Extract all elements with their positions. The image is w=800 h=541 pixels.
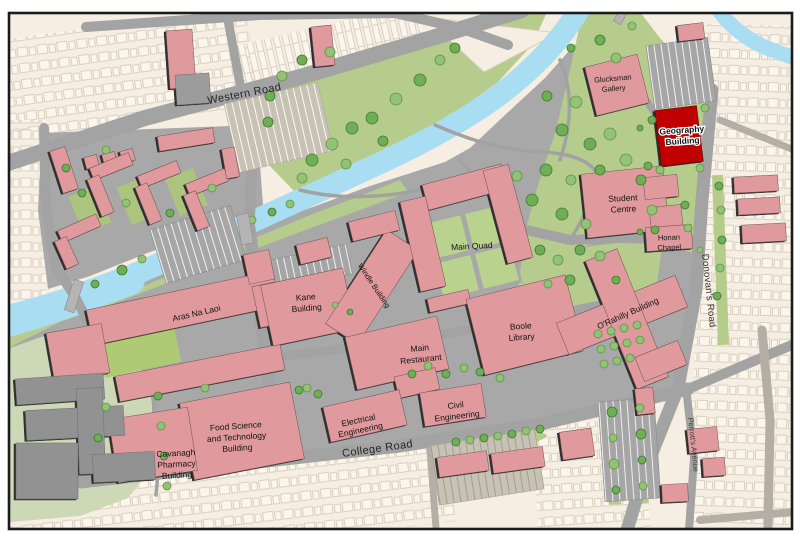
tree [347, 309, 353, 315]
tree [717, 206, 725, 214]
tree [612, 276, 620, 284]
tree [295, 386, 303, 394]
tree [609, 434, 617, 442]
tree [494, 432, 502, 440]
tree [78, 189, 86, 197]
tree [91, 280, 99, 288]
tree [581, 219, 591, 229]
tree [138, 255, 146, 263]
label-line: Student [608, 192, 638, 204]
tree [623, 339, 631, 347]
tree [626, 354, 634, 362]
tree [522, 427, 530, 435]
tree [341, 159, 351, 169]
label-line: Chapel [657, 243, 681, 253]
label-honan-chapel: Honan Chapel [657, 233, 682, 253]
tree [154, 392, 162, 400]
tree [460, 364, 468, 372]
tree [628, 22, 636, 30]
tree [607, 327, 615, 335]
tree [157, 422, 165, 430]
building [677, 22, 705, 41]
tree [716, 264, 724, 272]
tree [496, 374, 504, 382]
tree [414, 74, 426, 86]
tree [208, 184, 216, 192]
tree [718, 236, 726, 244]
tree [610, 342, 618, 350]
building [734, 175, 779, 193]
tree [390, 93, 402, 105]
campus-map: Western Road College Road Donovan's Road… [0, 0, 800, 541]
tree [346, 122, 358, 134]
tree [442, 370, 450, 378]
tree [597, 345, 605, 353]
building [559, 428, 595, 460]
tree [556, 208, 568, 220]
label-line: Building [222, 442, 253, 454]
tree [604, 128, 616, 140]
tree [122, 199, 130, 207]
building [742, 223, 787, 243]
tree [297, 173, 307, 183]
tree [656, 166, 664, 174]
tree [286, 200, 294, 208]
tree [435, 55, 445, 65]
label-line: Honan [658, 233, 680, 243]
label-line: Main [410, 342, 430, 354]
campus-map-page: Western Road College Road Donovan's Road… [0, 0, 800, 541]
tree [166, 209, 174, 217]
tree [512, 171, 522, 181]
tree [607, 407, 617, 417]
tree [565, 275, 575, 285]
tree [332, 302, 338, 308]
tree [408, 370, 416, 378]
building [662, 483, 689, 502]
label-cavanagh-pharmacy: Cavanagh Pharmacy Building [156, 447, 197, 481]
tree [637, 125, 643, 131]
tree [595, 35, 605, 45]
label-line: Centre [610, 203, 636, 214]
building [643, 174, 679, 199]
tree [636, 404, 644, 412]
tree [556, 124, 568, 136]
tree [94, 434, 102, 442]
tree [681, 201, 689, 209]
label-line: Cavanagh [156, 447, 195, 459]
tree [163, 482, 171, 490]
label-line: Kane [295, 291, 316, 303]
tree [595, 165, 605, 175]
tree [566, 175, 576, 185]
tree [263, 117, 273, 127]
tree [633, 321, 641, 329]
building-gray [16, 443, 78, 499]
tree [466, 436, 474, 444]
tree [378, 136, 388, 146]
tree [325, 47, 335, 57]
parking-lot [646, 37, 716, 109]
tree [696, 164, 704, 172]
building [738, 197, 781, 215]
tree [306, 154, 318, 166]
tree [526, 194, 538, 206]
tree [594, 330, 602, 338]
tree [536, 425, 544, 433]
building-gray [25, 405, 124, 440]
tree [450, 43, 460, 53]
tree [268, 208, 276, 216]
tree [314, 390, 322, 398]
tree [647, 205, 657, 215]
tree [644, 162, 652, 170]
tree [701, 104, 709, 112]
tree [476, 368, 484, 376]
tree [611, 53, 621, 63]
tree [480, 434, 488, 442]
tree [542, 91, 552, 101]
label-student-centre: Student Centre [608, 192, 639, 215]
tree [570, 96, 582, 108]
label-geography-building: Geography Building [659, 123, 705, 147]
tree [636, 429, 646, 439]
tree [636, 175, 646, 185]
label-line: Pharmacy [157, 458, 196, 470]
tree [620, 324, 628, 332]
tree [277, 71, 287, 81]
label-line: Library [508, 331, 535, 343]
tree [297, 55, 307, 65]
building [311, 25, 335, 67]
tree [62, 164, 70, 172]
tree [508, 430, 516, 438]
building-gray [92, 451, 155, 482]
tree [715, 182, 723, 190]
tree [609, 459, 619, 469]
map-content: Western Road College Road Donovan's Road… [0, 3, 800, 541]
tree [638, 456, 646, 464]
tree [102, 403, 110, 411]
label-boole-library: Boole Library [507, 320, 535, 343]
tree [452, 438, 460, 446]
tree [326, 138, 338, 150]
building [702, 457, 725, 476]
building-gray [175, 73, 211, 105]
tree [684, 224, 692, 232]
tree [613, 357, 621, 365]
label-line: Boole [510, 320, 533, 332]
tree [102, 146, 110, 154]
tree [648, 116, 656, 124]
tree [612, 486, 620, 494]
tree [600, 360, 608, 368]
tree [540, 164, 552, 176]
tree [303, 384, 311, 392]
tree [636, 336, 644, 344]
tree [567, 44, 575, 52]
tree [553, 255, 563, 265]
tree [595, 251, 605, 261]
tree [639, 482, 647, 490]
tree [620, 154, 632, 166]
tree [117, 265, 127, 275]
tree [637, 229, 643, 235]
tree [697, 247, 703, 253]
tree [575, 245, 585, 255]
tree [201, 384, 209, 392]
label-line: Civil [447, 399, 464, 411]
tree [535, 245, 545, 255]
tree [544, 280, 552, 288]
label-line: Building [162, 469, 193, 481]
tree [366, 112, 378, 124]
tree [584, 138, 596, 150]
